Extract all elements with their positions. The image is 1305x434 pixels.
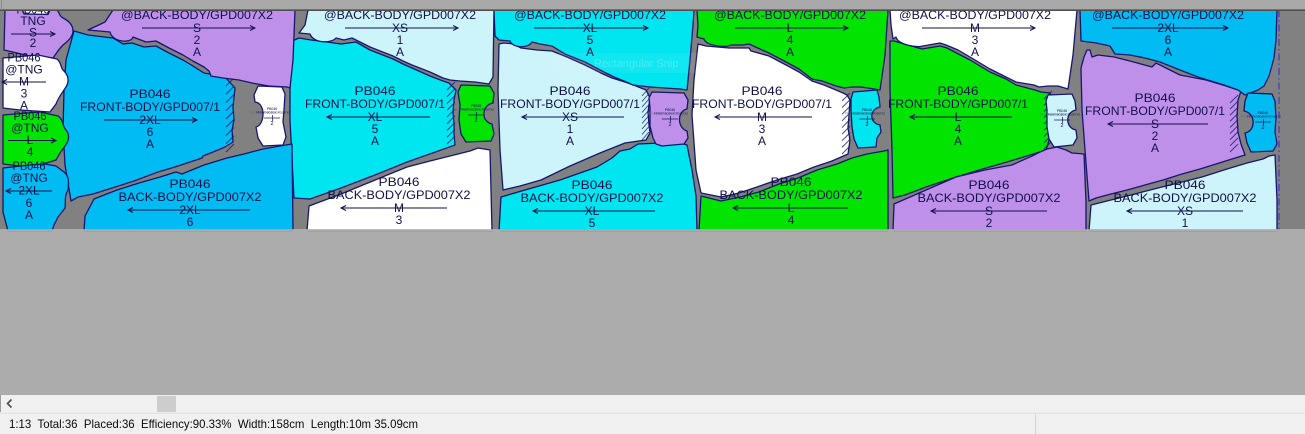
- svg-text:A: A: [758, 134, 766, 148]
- svg-text:PB046: PB046: [550, 84, 591, 98]
- svg-text:FRONT-BODY/GPD007X2: FRONT-BODY/GPD007X2: [1247, 115, 1281, 119]
- svg-text:2: 2: [30, 36, 37, 50]
- svg-text:PB046: PB046: [742, 84, 783, 98]
- svg-text:PB046: PB046: [969, 178, 1010, 192]
- svg-text:1:13 Total:36 Placed:36 Eff: 1:13 Total:36 Placed:36 Efficiency:90.33…: [9, 417, 418, 431]
- svg-text:A: A: [954, 134, 962, 148]
- svg-text:BACK-BODY/GPD007X2: BACK-BODY/GPD007X2: [918, 191, 1061, 205]
- svg-text:A: A: [146, 137, 154, 151]
- svg-text:4: 4: [788, 213, 795, 227]
- svg-text:BACK-BODY/GPD007X2: BACK-BODY/GPD007X2: [328, 188, 471, 202]
- svg-text:FRONT-BODY/GPD007/1: FRONT-BODY/GPD007/1: [500, 97, 640, 111]
- svg-text:2: 2: [270, 121, 273, 127]
- svg-text:BACK-BODY/GPD007X2: BACK-BODY/GPD007X2: [119, 190, 262, 204]
- svg-text:BACK-BODY/GPD007X2: BACK-BODY/GPD007X2: [521, 191, 664, 205]
- svg-text:2: 2: [1261, 125, 1264, 131]
- svg-text:A: A: [786, 45, 794, 59]
- svg-text:FRONT-BODY/GPD007/1: FRONT-BODY/GPD007/1: [80, 100, 220, 114]
- svg-text:PB046: PB046: [1135, 91, 1176, 105]
- svg-text:3: 3: [396, 213, 403, 227]
- svg-text:2: 2: [1060, 123, 1063, 129]
- svg-text:6: 6: [187, 215, 194, 229]
- svg-text:PB046: PB046: [771, 175, 812, 189]
- svg-text:A: A: [1164, 45, 1172, 59]
- svg-text:FRONT-BODY/GPD007X2: FRONT-BODY/GPD007X2: [654, 112, 688, 116]
- svg-text:FRONT-BODY/GPD007/1: FRONT-BODY/GPD007/1: [888, 97, 1028, 111]
- svg-text:FRONT-BODY/GPD007X2: FRONT-BODY/GPD007X2: [460, 108, 494, 112]
- svg-text:PB046: PB046: [170, 177, 211, 191]
- svg-text:A: A: [1151, 141, 1159, 155]
- svg-text:PB046: PB046: [572, 178, 613, 192]
- svg-text:PB046: PB046: [130, 87, 171, 101]
- svg-text:BACK-BODY/GPD007X2: BACK-BODY/GPD007X2: [1114, 191, 1257, 205]
- svg-text:A: A: [193, 45, 201, 59]
- svg-text:FRONT-BODY/GPD007X2: FRONT-BODY/GPD007X2: [851, 112, 885, 116]
- svg-text:A: A: [25, 208, 33, 222]
- svg-text:PB046: PB046: [1165, 178, 1206, 192]
- svg-text:2: 2: [474, 118, 477, 124]
- svg-text:4: 4: [27, 145, 34, 159]
- svg-text:A: A: [566, 134, 574, 148]
- svg-text:FRONT-BODY/GPD007/1: FRONT-BODY/GPD007/1: [692, 97, 832, 111]
- svg-text:BACK-BODY/GPD007X2: BACK-BODY/GPD007X2: [720, 188, 863, 202]
- svg-text:PB046: PB046: [938, 84, 979, 98]
- svg-text:2: 2: [986, 216, 993, 230]
- svg-text:A: A: [396, 45, 404, 59]
- svg-text:5: 5: [589, 216, 596, 230]
- svg-text:A: A: [371, 134, 379, 148]
- svg-text:A: A: [971, 45, 979, 59]
- svg-text:PB046: PB046: [379, 175, 420, 189]
- svg-text:FRONT-BODY/GPD007/1: FRONT-BODY/GPD007/1: [1085, 104, 1225, 118]
- svg-text:1: 1: [1182, 216, 1189, 230]
- svg-text:2: 2: [668, 122, 671, 128]
- svg-text:PB046: PB046: [355, 84, 396, 98]
- svg-text:FRONT-BODY/GPD007X2: FRONT-BODY/GPD007X2: [1046, 113, 1080, 117]
- svg-text:Rectangular Snip: Rectangular Snip: [594, 58, 678, 70]
- svg-text:2: 2: [865, 122, 868, 128]
- svg-text:FRONT-BODY/GPD007/1: FRONT-BODY/GPD007/1: [305, 97, 445, 111]
- svg-text:FRONT-BODY/GPD007X2: FRONT-BODY/GPD007X2: [256, 111, 290, 115]
